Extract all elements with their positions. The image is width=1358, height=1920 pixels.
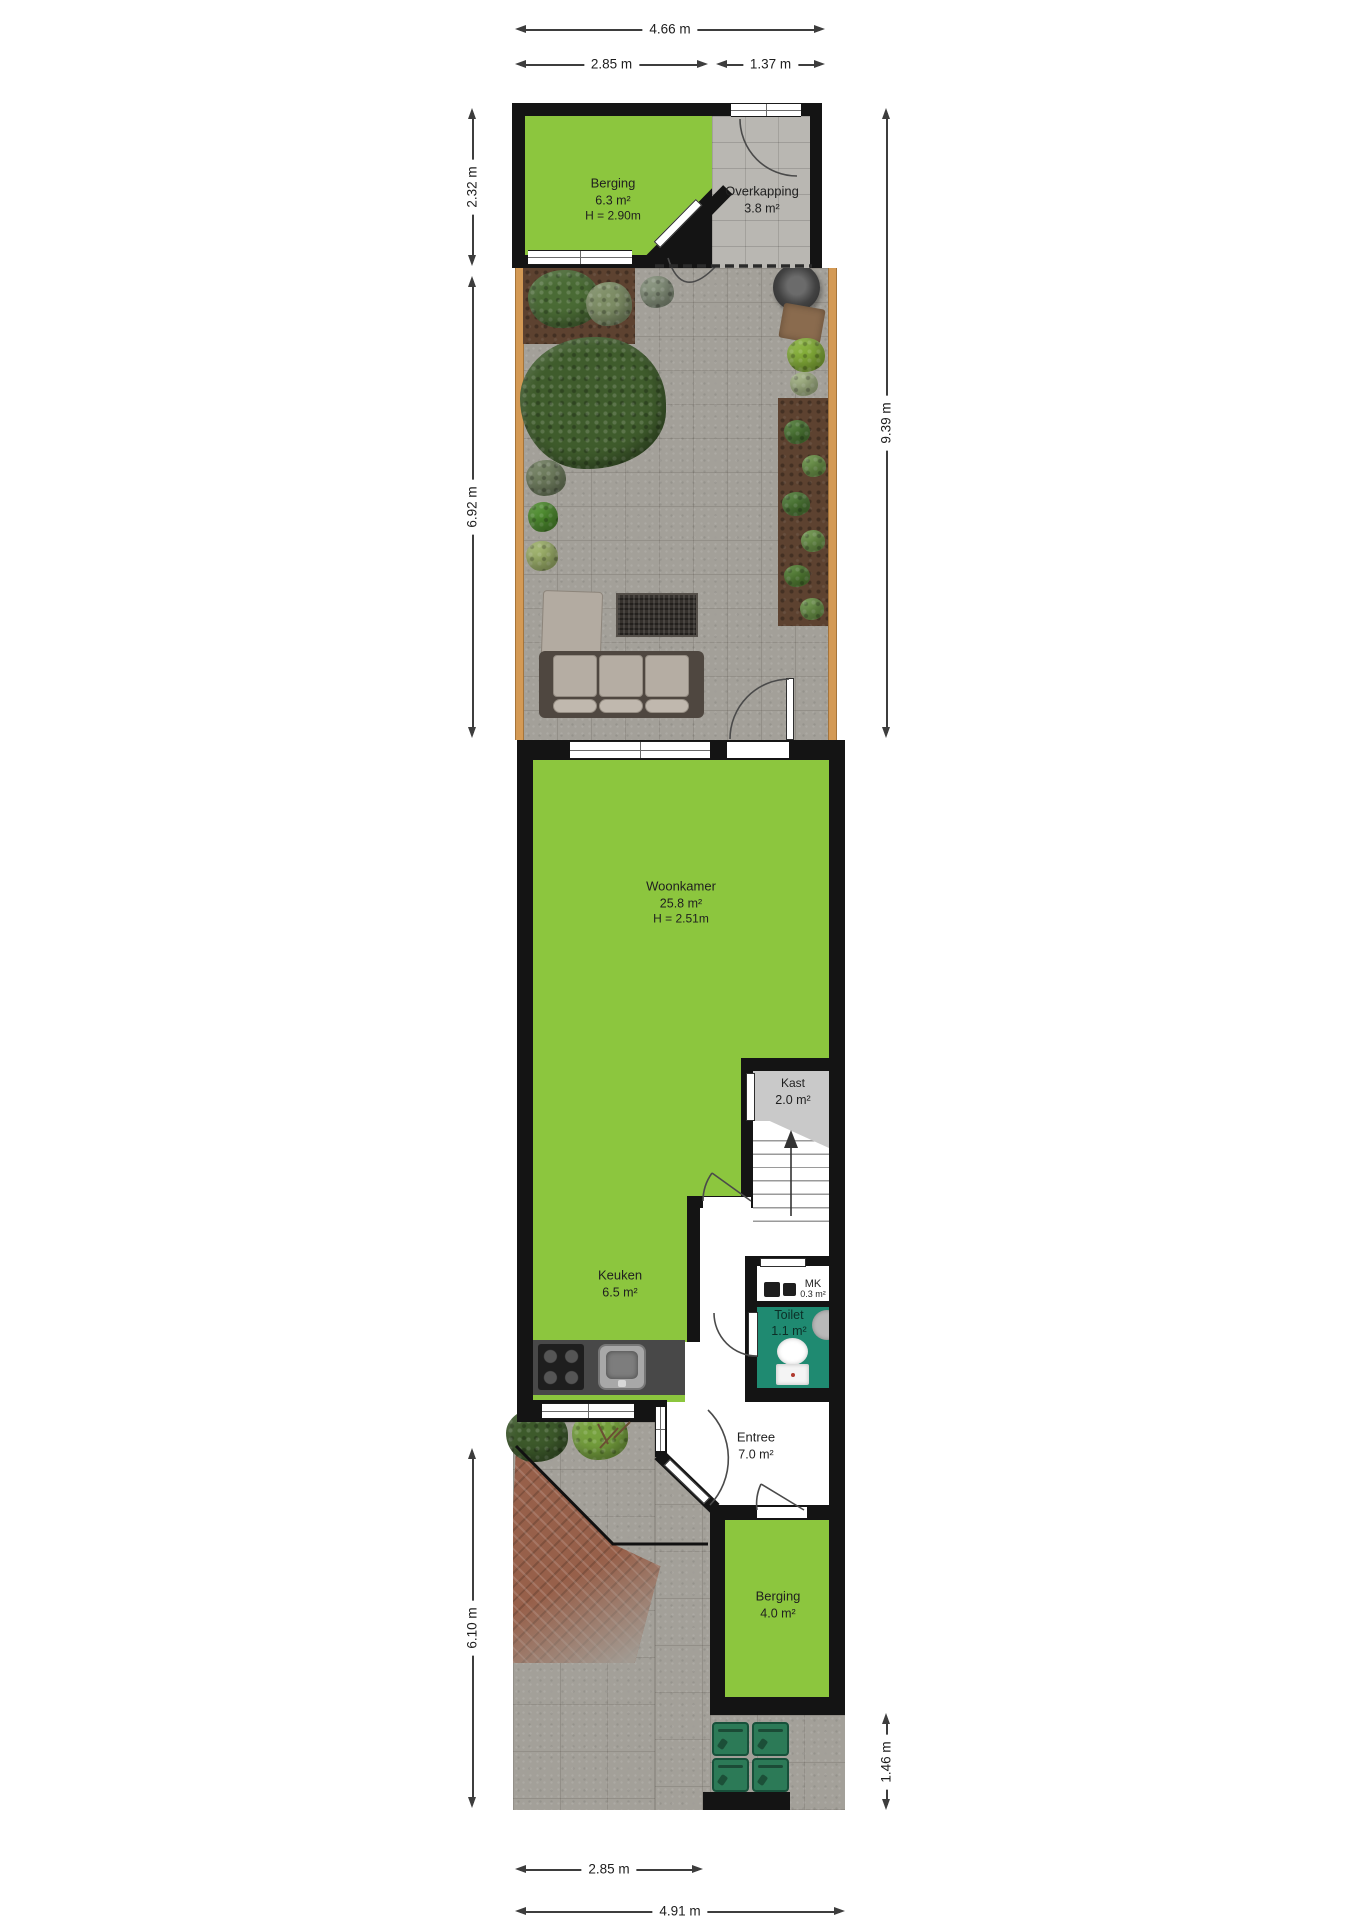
arrow-down-icon: [882, 727, 890, 738]
arrow-right-icon: [692, 1865, 703, 1873]
waste-bin: [752, 1758, 789, 1792]
boundary-wall-stub: [703, 1792, 790, 1810]
arrow-up-icon: [882, 108, 890, 119]
arrow-down-icon: [468, 1797, 476, 1808]
waste-bin: [712, 1722, 749, 1756]
room-name: Entree: [737, 1429, 775, 1446]
dim-label: 4.91 m: [652, 1903, 707, 1920]
dim-label: 2.85 m: [581, 1861, 636, 1878]
electric-meter: [764, 1282, 780, 1297]
bed-plant-1: [784, 420, 810, 444]
berging-door-opening: [757, 1507, 807, 1518]
gas-meter: [783, 1283, 796, 1296]
kast-top-wall: [741, 1058, 829, 1071]
room-name: Toilet: [771, 1307, 806, 1323]
arrow-right-icon: [814, 25, 825, 33]
room-area: 7.0 m²: [737, 1446, 775, 1462]
dim-label: 4.66 m: [642, 21, 697, 38]
garden-fence-right: [828, 268, 837, 740]
kitchen-sink: [598, 1344, 646, 1390]
room-woonkamer-lower: [533, 1058, 741, 1202]
house-left-wall: [517, 740, 533, 1422]
mk-door-leaf: [760, 1258, 806, 1267]
room-name: Keuken: [598, 1267, 642, 1284]
arrow-down-icon: [468, 727, 476, 738]
bed-plant-6: [800, 598, 824, 620]
chaise-cushion: [541, 590, 603, 658]
room-area: 2.0 m²: [775, 1092, 810, 1108]
overkapping-top-window: [731, 103, 801, 117]
room-area: 3.8 m²: [725, 200, 799, 216]
arrow-left-icon: [515, 60, 526, 68]
garden-coffee-table: [616, 593, 698, 637]
front-door-arc: [708, 1410, 728, 1505]
room-name: Kast: [775, 1076, 810, 1092]
waste-bin: [712, 1758, 749, 1792]
overkapping-label: Overkapping 3.8 m²: [725, 183, 799, 216]
toilet-bowl: [777, 1338, 808, 1365]
large-bush: [520, 337, 666, 469]
entree-label: Entree 7.0 m²: [737, 1429, 775, 1462]
plant-bright-green: [787, 338, 825, 372]
sofa-back-cushion: [599, 655, 643, 697]
berging-bottom-label: Berging 4.0 m²: [756, 1588, 801, 1621]
room-area: 25.8 m²: [646, 896, 716, 912]
room-name: Overkapping: [725, 183, 799, 200]
arrow-up-icon: [468, 1448, 476, 1459]
room-name: Berging: [756, 1588, 801, 1605]
room-area: 6.5 m²: [598, 1284, 642, 1300]
room-area: 6.3 m²: [585, 193, 641, 209]
berging-top-window: [528, 250, 632, 265]
dim-label: 9.39 m: [878, 395, 895, 450]
arrow-right-icon: [834, 1907, 845, 1915]
dim-label: 1.46 m: [878, 1734, 895, 1789]
woonkamer-label: Woonkamer 25.8 m² H = 2.51m: [646, 879, 716, 928]
sofa-seat-bolster: [553, 699, 597, 713]
bed-plant-3: [782, 492, 810, 516]
sofa-seat-bolster: [645, 699, 689, 713]
arrow-down-icon: [882, 1799, 890, 1810]
keuken-label: Keuken 6.5 m²: [598, 1267, 642, 1300]
entree-window: [655, 1407, 666, 1451]
bush-small-1: [526, 460, 566, 496]
arrow-left-icon: [515, 1865, 526, 1873]
arrow-right-icon: [697, 60, 708, 68]
bush-small-2: [528, 502, 558, 532]
bed-plant-5: [784, 565, 810, 587]
plant-pale-green: [790, 372, 818, 396]
kitchen-window: [542, 1403, 634, 1419]
floorplan-canvas: 4.66 m 2.85 m 1.37 m 2.32 m 6.92 m 6.10 …: [0, 0, 1358, 1920]
room-area: 4.0 m²: [756, 1605, 801, 1621]
small-grey-plant: [640, 276, 674, 308]
front-garden-paving-mid: [655, 1457, 710, 1810]
kast-door-leaf: [746, 1073, 755, 1121]
arrow-left-icon: [515, 1907, 526, 1915]
waste-bin: [752, 1722, 789, 1756]
garden-door-leaf: [786, 678, 794, 740]
woonkamer-door-opening: [703, 1197, 751, 1208]
dim-label: 6.92 m: [464, 479, 481, 534]
toilet-tank: [776, 1364, 809, 1385]
sofa-back-cushion: [553, 655, 597, 697]
toilet-label: Toilet 1.1 m²: [771, 1307, 806, 1340]
kast-label: Kast 2.0 m²: [775, 1076, 810, 1108]
dim-label: 2.32 m: [464, 159, 481, 214]
berging-bottom-left-wall: [710, 1505, 725, 1715]
berging-top-label: Berging 6.3 m² H = 2.90m: [585, 176, 641, 225]
room-name: Woonkamer: [646, 879, 716, 896]
dim-label: 2.85 m: [584, 56, 639, 73]
berging-bottom-bottom-wall: [710, 1697, 845, 1715]
arrow-down-icon: [468, 255, 476, 266]
room-area: 0.3 m²: [800, 1290, 826, 1300]
room-name: Berging: [585, 176, 641, 193]
bush-small-3: [526, 541, 558, 571]
room-height: H = 2.90m: [585, 209, 641, 225]
room-area: 1.1 m²: [771, 1323, 806, 1339]
house-right-wall: [829, 740, 845, 1715]
dim-label: 1.37 m: [743, 56, 798, 73]
sofa-seat-bolster: [599, 699, 643, 713]
arrow-up-icon: [882, 1713, 890, 1724]
arrow-up-icon: [468, 276, 476, 287]
agave-plant: [586, 282, 632, 326]
bed-plant-4: [801, 530, 825, 552]
keuken-hall-wall: [687, 1196, 700, 1342]
room-height: H = 2.51m: [646, 912, 716, 928]
dim-label: 6.10 m: [464, 1600, 481, 1655]
bed-plant-2: [802, 455, 826, 477]
arrow-left-icon: [716, 60, 727, 68]
stove-hob: [538, 1344, 584, 1390]
garden-door-opening: [727, 742, 789, 758]
mk-label: MK 0.3 m²: [800, 1278, 826, 1300]
toilet-door-leaf: [748, 1312, 758, 1357]
garden-sofa: [539, 651, 704, 718]
arrow-left-icon: [515, 25, 526, 33]
toilet-bottom-wall: [745, 1388, 829, 1402]
sofa-back-cushion: [645, 655, 689, 697]
arrow-up-icon: [468, 108, 476, 119]
woonkamer-garden-window: [570, 741, 710, 759]
arrow-right-icon: [814, 60, 825, 68]
